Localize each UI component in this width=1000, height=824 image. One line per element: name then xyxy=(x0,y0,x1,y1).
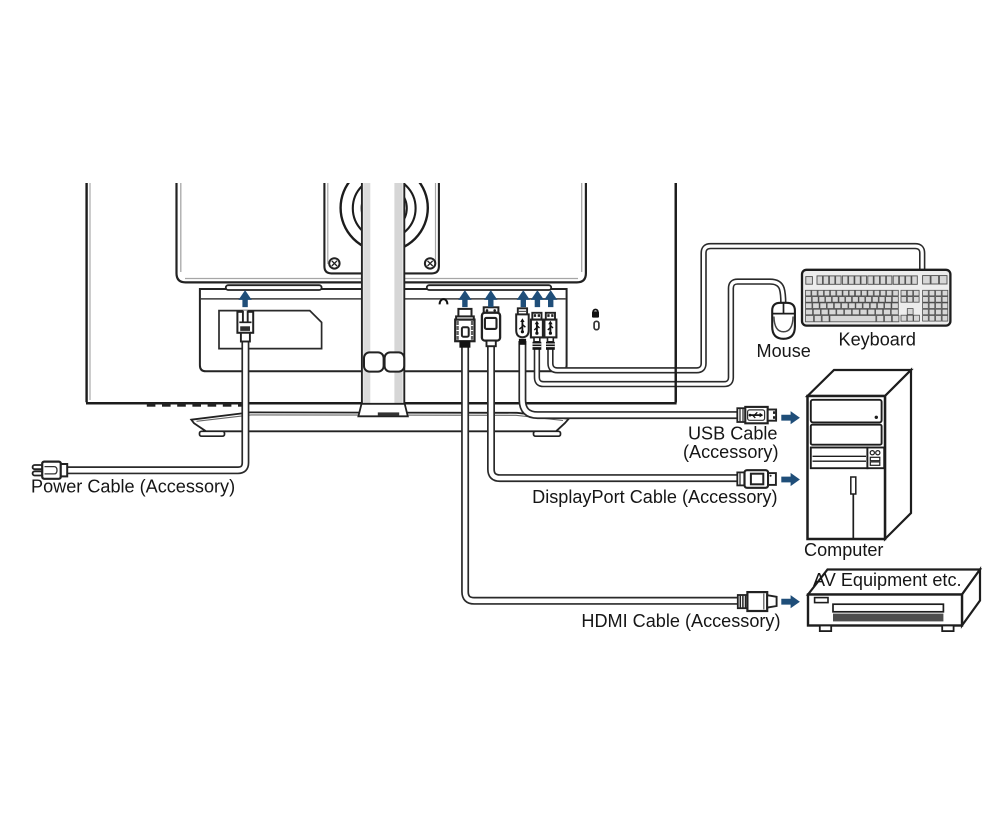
svg-text:Computer: Computer xyxy=(804,540,883,560)
svg-text:DisplayPort Cable (Accessory): DisplayPort Cable (Accessory) xyxy=(532,487,777,507)
svg-text:HDMI Cable (Accessory): HDMI Cable (Accessory) xyxy=(581,611,780,631)
svg-text:(Accessory): (Accessory) xyxy=(683,442,779,462)
svg-text:AV Equipment etc.: AV Equipment etc. xyxy=(813,570,962,590)
svg-text:Mouse: Mouse xyxy=(757,341,811,361)
svg-text:Keyboard: Keyboard xyxy=(839,329,916,349)
svg-text:Power Cable (Accessory): Power Cable (Accessory) xyxy=(31,476,235,496)
svg-text:USB Cable: USB Cable xyxy=(688,424,778,444)
